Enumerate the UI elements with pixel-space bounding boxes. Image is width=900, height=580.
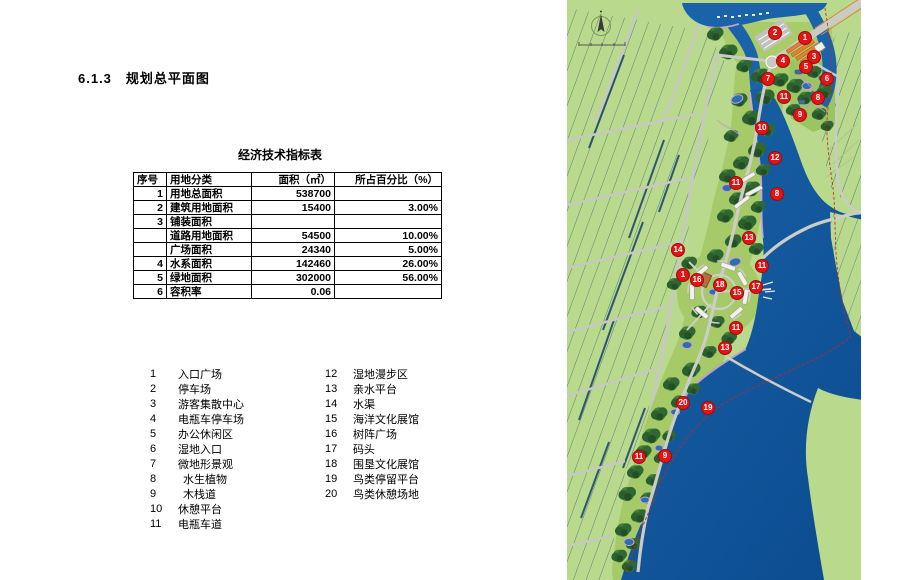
map-marker-13: 13 (718, 341, 732, 355)
table-cell: 铺装面积 (167, 215, 252, 229)
table-cell: 4 (134, 257, 167, 271)
table-cell: 54500 (252, 229, 335, 243)
table-header-cell: 所占百分比（%） (335, 173, 442, 187)
legend-item-number: 20 (325, 488, 353, 500)
legend-item-number: 8 (150, 473, 178, 485)
table-cell (252, 215, 335, 229)
legend-item-label: 亲水平台 (353, 381, 397, 397)
map-marker-11: 11 (755, 259, 769, 273)
legend-item-number: 19 (325, 473, 353, 485)
table-cell: 56.00% (335, 271, 442, 285)
legend-item: 17码头 (325, 441, 419, 456)
legend-item-label: 鸟类停留平台 (353, 471, 419, 487)
table-cell: 302000 (252, 271, 335, 285)
legend-item-label: 围垦文化展馆 (353, 456, 419, 472)
table-row: 3铺装面积 (134, 215, 442, 229)
table-cell: 6 (134, 285, 167, 299)
map-marker-1: 1 (676, 268, 690, 282)
legend-item-label: 入口广场 (178, 366, 222, 382)
map-marker-9: 9 (793, 108, 807, 122)
legend-item: 13亲水平台 (325, 381, 419, 396)
map-marker-11: 11 (632, 450, 646, 464)
legend-item: 10休憩平台 (150, 501, 244, 516)
legend-item: 8水生植物 (150, 471, 244, 486)
table-cell: 3.00% (335, 201, 442, 215)
legend-item: 20鸟类休憩场地 (325, 486, 419, 501)
table-cell (335, 215, 442, 229)
table-cell: 广场面积 (167, 243, 252, 257)
legend-item: 15海洋文化展馆 (325, 411, 419, 426)
legend-item-label: 湿地入口 (178, 441, 222, 457)
legend-item-number: 7 (150, 458, 178, 470)
table-cell: 24340 (252, 243, 335, 257)
legend-item-number: 4 (150, 413, 178, 425)
legend-item: 19鸟类停留平台 (325, 471, 419, 486)
table-row: 4水系面积14246026.00% (134, 257, 442, 271)
map-marker-13: 13 (742, 231, 756, 245)
legend-item: 9木栈道 (150, 486, 244, 501)
table-cell: 绿地面积 (167, 271, 252, 285)
table-row: 2建筑用地面积154003.00% (134, 201, 442, 215)
map-marker-18: 18 (713, 278, 727, 292)
legend-item-label: 木栈道 (178, 486, 216, 502)
map-marker-8: 8 (811, 91, 825, 105)
legend-item-number: 13 (325, 383, 353, 395)
map-marker-14: 14 (671, 243, 685, 257)
table-header-cell: 面积（㎡） (252, 173, 335, 187)
legend-item-number: 3 (150, 398, 178, 410)
site-plan-map: 2134576118910121181314111161817151113201… (567, 0, 861, 580)
map-marker-8: 8 (770, 187, 784, 201)
map-marker-11: 11 (729, 321, 743, 335)
table-cell (335, 285, 442, 299)
legend-item-number: 17 (325, 443, 353, 455)
map-marker-20: 20 (676, 396, 690, 410)
table-cell: 26.00% (335, 257, 442, 271)
table-cell: 水系面积 (167, 257, 252, 271)
map-marker-11: 11 (729, 176, 743, 190)
legend-item-number: 5 (150, 428, 178, 440)
table-cell: 5 (134, 271, 167, 285)
table-row: 道路用地面积5450010.00% (134, 229, 442, 243)
legend-item: 6湿地入口 (150, 441, 244, 456)
table-cell (134, 229, 167, 243)
legend-left-column: 1入口广场2停车场3游客集散中心4电瓶车停车场5办公休闲区6湿地入口7微地形景观… (150, 366, 244, 531)
map-marker-4: 4 (776, 54, 790, 68)
legend-item-label: 电瓶车停车场 (178, 411, 244, 427)
map-marker-5: 5 (799, 60, 813, 74)
legend-item-label: 海洋文化展馆 (353, 411, 419, 427)
map-marker-15: 15 (730, 286, 744, 300)
legend-item-number: 10 (150, 503, 178, 515)
map-marker-17: 17 (749, 280, 763, 294)
legend-item-number: 2 (150, 383, 178, 395)
legend-item: 4电瓶车停车场 (150, 411, 244, 426)
legend-item-label: 水生植物 (178, 471, 227, 487)
legend-item: 7微地形景观 (150, 456, 244, 471)
legend-item-label: 湿地漫步区 (353, 366, 408, 382)
map-marker-12: 12 (768, 151, 782, 165)
section-title: 6.1.3规划总平面图 (78, 68, 210, 87)
page: { "page": { "section_number": "6.1.3", "… (0, 0, 900, 580)
table-cell: 容积率 (167, 285, 252, 299)
table-cell: 道路用地面积 (167, 229, 252, 243)
legend-right-column: 12湿地漫步区13亲水平台14水渠15海洋文化展馆16树阵广场17码头18围垦文… (325, 366, 419, 501)
legend-item-label: 办公休闲区 (178, 426, 233, 442)
legend-item-label: 水渠 (353, 396, 375, 412)
table-row: 广场面积243405.00% (134, 243, 442, 257)
legend-item-number: 9 (150, 488, 178, 500)
table-cell: 538700 (252, 187, 335, 201)
table-cell: 用地总面积 (167, 187, 252, 201)
legend-item-label: 电瓶车道 (178, 516, 222, 532)
table-cell: 0.06 (252, 285, 335, 299)
legend-item-label: 微地形景观 (178, 456, 233, 472)
legend-item: 14水渠 (325, 396, 419, 411)
table-cell: 5.00% (335, 243, 442, 257)
legend-item-label: 码头 (353, 441, 375, 457)
legend-item-label: 树阵广场 (353, 426, 397, 442)
legend-item-number: 15 (325, 413, 353, 425)
table-cell: 10.00% (335, 229, 442, 243)
table-cell (134, 243, 167, 257)
legend-item-number: 18 (325, 458, 353, 470)
legend-item-number: 16 (325, 428, 353, 440)
map-marker-2: 2 (768, 26, 782, 40)
table-header-row: 序号用地分类面积（㎡）所占百分比（%） (134, 173, 442, 187)
legend-item: 12湿地漫步区 (325, 366, 419, 381)
legend-item: 16树阵广场 (325, 426, 419, 441)
map-marker-16: 16 (690, 273, 704, 287)
legend-item-number: 1 (150, 368, 178, 380)
legend-item-number: 6 (150, 443, 178, 455)
legend-item: 11电瓶车道 (150, 516, 244, 531)
legend-item: 3游客集散中心 (150, 396, 244, 411)
table-cell: 3 (134, 215, 167, 229)
table-cell: 2 (134, 201, 167, 215)
legend-item-number: 12 (325, 368, 353, 380)
legend-item: 18围垦文化展馆 (325, 456, 419, 471)
map-marker-6: 6 (820, 72, 834, 86)
table-row: 1用地总面积538700 (134, 187, 442, 201)
legend-item-label: 停车场 (178, 381, 211, 397)
map-marker-10: 10 (755, 121, 769, 135)
legend-item: 1入口广场 (150, 366, 244, 381)
site-plan-drawing (567, 0, 861, 580)
legend-item: 2停车场 (150, 381, 244, 396)
map-marker-7: 7 (761, 72, 775, 86)
table-row: 5绿地面积30200056.00% (134, 271, 442, 285)
legend-item-label: 游客集散中心 (178, 396, 244, 412)
table-cell: 1 (134, 187, 167, 201)
legend-item-number: 11 (150, 518, 178, 530)
map-marker-19: 19 (701, 401, 715, 415)
table-header-cell: 序号 (134, 173, 167, 187)
map-marker-11: 11 (777, 90, 791, 104)
legend-item-number: 14 (325, 398, 353, 410)
table-row: 6容积率0.06 (134, 285, 442, 299)
table-cell: 15400 (252, 201, 335, 215)
table-cell: 建筑用地面积 (167, 201, 252, 215)
table-cell (335, 187, 442, 201)
map-marker-1: 1 (798, 31, 812, 45)
legend-item-label: 休憩平台 (178, 501, 222, 517)
section-number: 6.1.3 (78, 71, 112, 86)
legend-item-label: 鸟类休憩场地 (353, 486, 419, 502)
indicator-table: 序号用地分类面积（㎡）所占百分比（%） 1用地总面积5387002建筑用地面积1… (133, 172, 442, 299)
map-marker-9: 9 (658, 449, 672, 463)
table-title: 经济技术指标表 (133, 146, 427, 163)
table-cell: 142460 (252, 257, 335, 271)
legend-item: 5办公休闲区 (150, 426, 244, 441)
section-title-text: 规划总平面图 (126, 71, 210, 86)
table-header-cell: 用地分类 (167, 173, 252, 187)
